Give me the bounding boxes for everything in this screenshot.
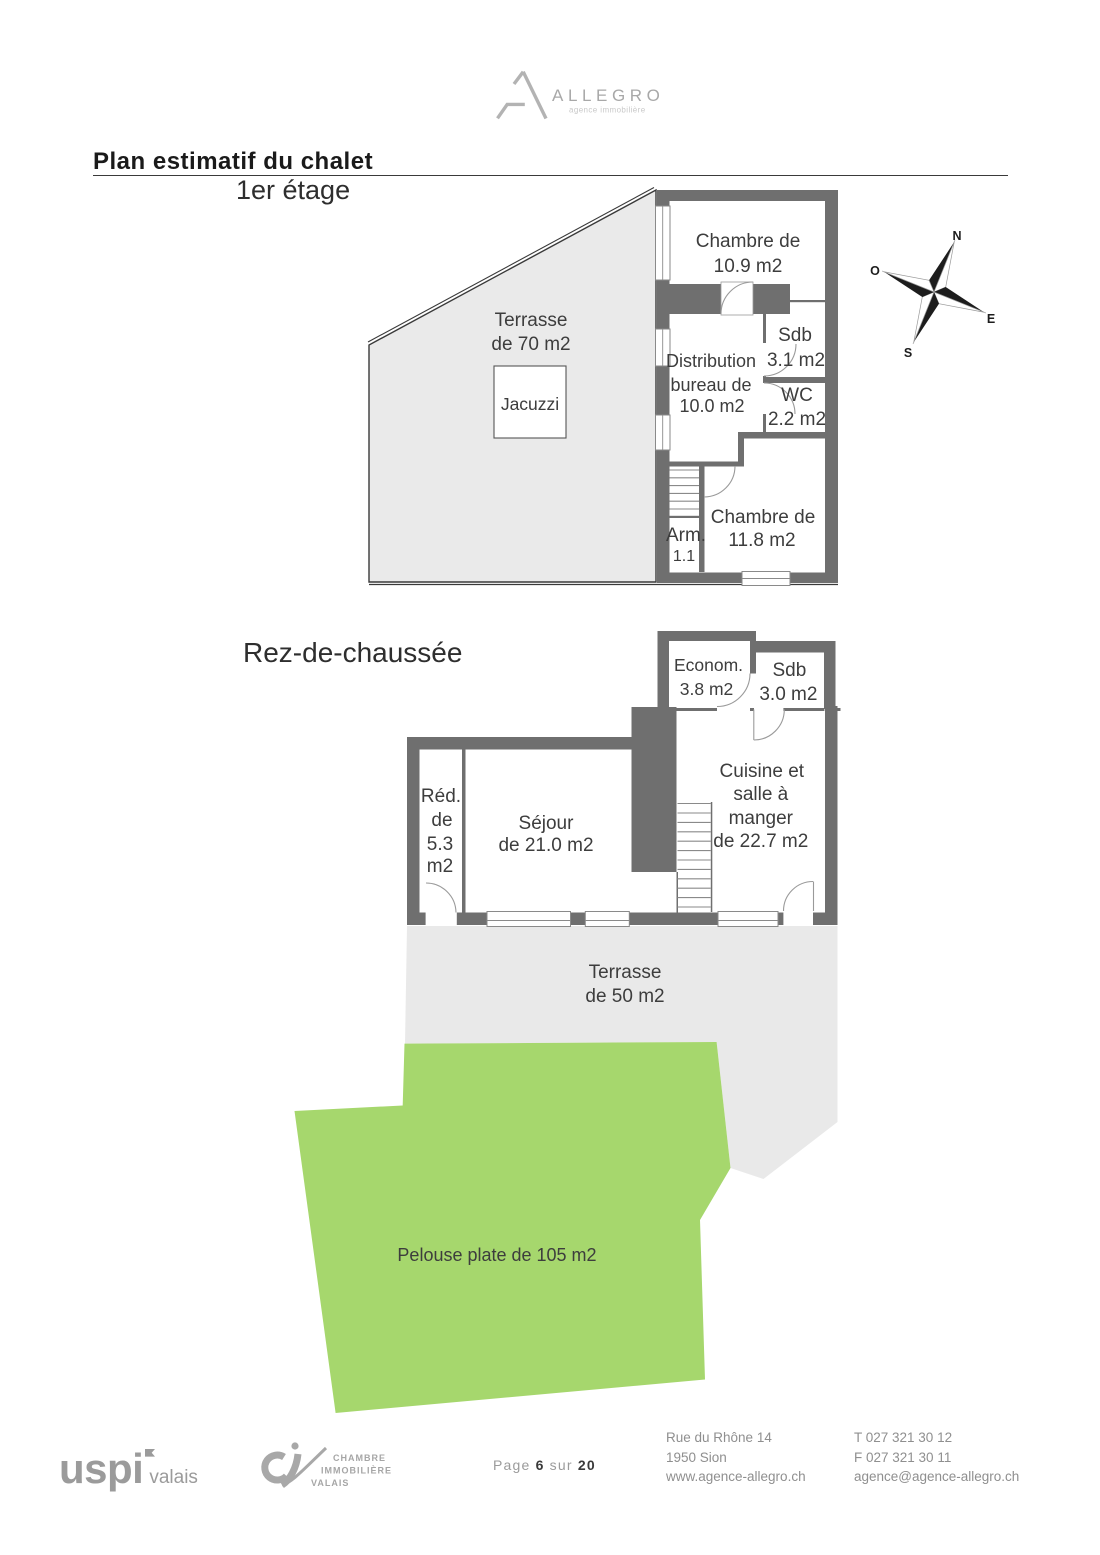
svg-text:Chambre de: Chambre de: [711, 507, 816, 528]
svg-text:Terrasse: Terrasse: [495, 310, 568, 331]
svg-text:1.1: 1.1: [673, 548, 695, 565]
svg-text:Sdb: Sdb: [772, 660, 806, 681]
svg-text:Cuisine et: Cuisine et: [720, 761, 805, 782]
svg-text:11.8 m2: 11.8 m2: [728, 530, 795, 551]
svg-text:5.3: 5.3: [427, 834, 453, 855]
svg-text:Séjour: Séjour: [519, 813, 575, 834]
svg-text:bureau de: bureau de: [670, 375, 751, 395]
svg-text:O: O: [870, 264, 880, 278]
svg-text:manger: manger: [729, 808, 794, 829]
svg-text:Distribution: Distribution: [666, 351, 756, 371]
svg-text:3.0 m2: 3.0 m2: [759, 684, 817, 705]
svg-text:E: E: [987, 312, 995, 326]
svg-text:de 22.7 m2: de 22.7 m2: [713, 831, 808, 852]
svg-text:CHAMBRE: CHAMBRE: [333, 1453, 386, 1463]
svg-text:10.0 m2: 10.0 m2: [679, 396, 744, 416]
svg-text:salle à: salle à: [733, 784, 788, 805]
svg-text:2.2 m2: 2.2 m2: [768, 409, 826, 430]
svg-text:Arm.: Arm.: [666, 525, 706, 546]
svg-text:Réd.: Réd.: [421, 786, 461, 807]
svg-text:VALAIS: VALAIS: [311, 1478, 349, 1488]
svg-text:de 21.0 m2: de 21.0 m2: [498, 835, 593, 856]
svg-text:de 70 m2: de 70 m2: [491, 334, 570, 355]
svg-text:3.8 m2: 3.8 m2: [680, 679, 734, 699]
svg-text:de: de: [431, 810, 452, 831]
svg-text:de 50 m2: de 50 m2: [585, 986, 664, 1007]
svg-text:Sdb: Sdb: [778, 325, 812, 346]
svg-text:3.1 m2: 3.1 m2: [767, 350, 825, 371]
svg-text:Econom.: Econom.: [674, 655, 743, 675]
svg-text:Terrasse: Terrasse: [589, 962, 662, 983]
svg-text:Pelouse plate de 105 m2: Pelouse plate de 105 m2: [397, 1245, 596, 1265]
svg-text:10.9 m2: 10.9 m2: [714, 256, 783, 277]
svg-text:m2: m2: [427, 856, 453, 877]
svg-text:WC: WC: [781, 385, 813, 406]
svg-text:N: N: [952, 229, 961, 243]
svg-text:IMMOBILIÈRE: IMMOBILIÈRE: [321, 1466, 392, 1476]
svg-text:S: S: [904, 346, 912, 360]
svg-text:Jacuzzi: Jacuzzi: [501, 394, 559, 414]
svg-text:Chambre de: Chambre de: [696, 231, 801, 252]
